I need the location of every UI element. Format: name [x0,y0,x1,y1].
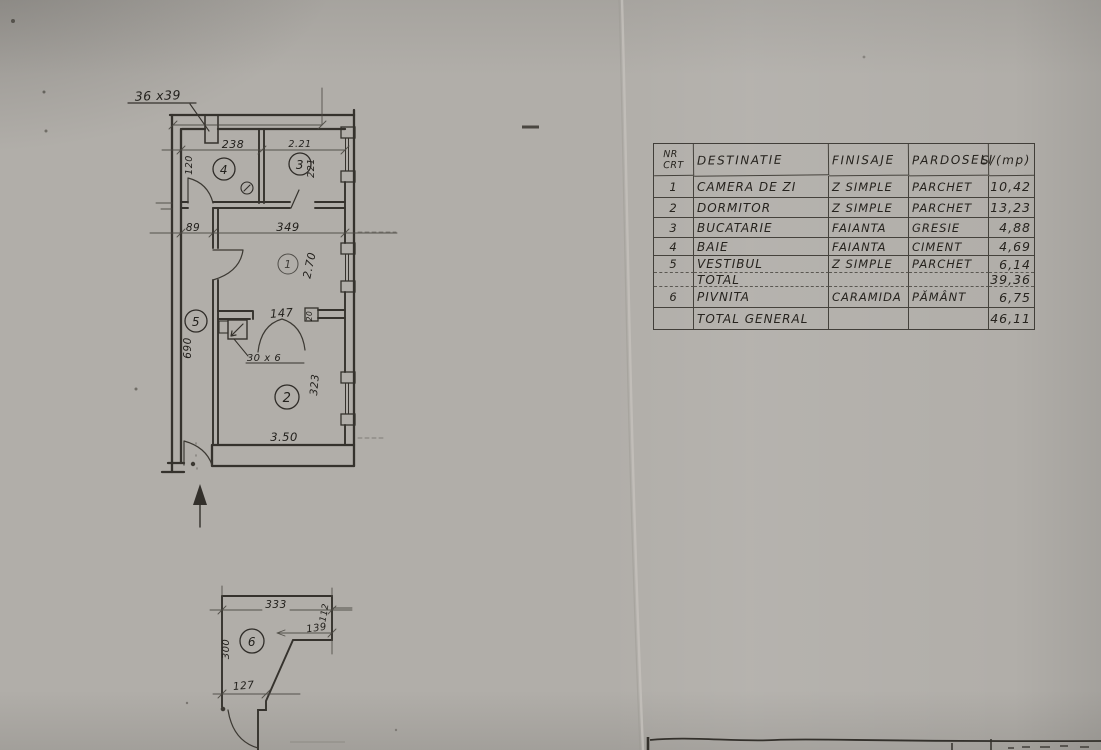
dim-20-rot: 20 [305,311,314,322]
plan-labels: 36 x39 238 2.21 221 120 89 349 2.70 147 … [135,87,322,444]
table-cell: CARAMIDA [829,287,909,308]
table-cell: 4,69 [989,238,1034,256]
table-cell: Z SIMPLE [829,176,909,198]
flue-arrow [231,324,243,336]
bath-door [188,178,213,203]
table-cell: 39,36 [989,273,1034,287]
dim-221-top: 2.21 [288,139,311,150]
table-cell: 2 [654,198,694,218]
dim-238: 238 [222,138,245,151]
bath-kitchen-wall [259,129,264,203]
table-cell: Z SIMPLE [829,256,909,273]
table-cell [909,308,989,329]
dim-221-rot: 221 [306,158,317,178]
room-number-1: 1 [284,258,292,271]
table-cell [654,273,694,287]
drain-circle [241,182,253,194]
room-circles [185,153,311,409]
dim-127: 127 [232,679,255,693]
table-cell [829,308,909,329]
double-door [258,319,305,352]
table-cell: 13,23 [989,198,1034,218]
title-block-fragment [648,737,1101,750]
dim-300-rot: 300 [221,639,232,660]
table-cell: 46,11 [989,308,1034,329]
living-bedroom-wall-left [218,311,253,319]
partitions [181,129,345,445]
table-cell-total-general: TOTAL GENERAL [694,308,829,329]
room-number-2: 2 [283,391,292,406]
table-cell: BAIE [694,238,829,256]
dim-30x6: 30 x 6 [247,353,281,364]
kitchen-door-leaf [291,190,299,208]
table-cell: 3 [654,218,694,238]
table-cell: 4,88 [989,218,1034,238]
living-bedroom-wall-right [318,310,345,318]
dim-323-rot: 323 [308,373,322,396]
paper-crease [619,0,643,750]
table-cell: PARCHET [909,256,989,273]
table-cell: PARCHET [909,198,989,218]
scanned-floorplan-page: { "table": { "headers": { "nr": "NR\nCRT… [0,0,1101,750]
room-number-4: 4 [220,163,228,177]
paper-specks [11,19,865,742]
dim-349: 349 [276,220,299,234]
dim-270-rot: 2.70 [300,251,318,280]
table-cell: 6 [654,287,694,308]
table-cell: 1 [654,176,694,198]
area-table: NR CRT DESTINATIE FINISAJE PARDOSELI S/(… [653,143,1035,330]
table-cell: 6,14 [989,256,1034,273]
dim-147: 147 [270,305,295,321]
flue-leader-line [190,104,209,131]
dim-120-rot: 120 [184,155,195,175]
table-cell: BUCATARIE [694,218,829,238]
table-cell: DORMITOR [694,198,829,218]
north-arrow-head [193,484,207,505]
wall-line [212,445,354,466]
table-cell-total: TOTAL [694,273,829,287]
table-cell: Z SIMPLE [829,198,909,218]
table-cell: GRESIE [909,218,989,238]
table-cell [829,273,909,287]
table-cell: 10,42 [989,176,1034,198]
dim-112-rot: 112 [318,603,331,623]
dim-690-rot: 690 [182,337,194,359]
living-door [213,250,243,280]
table-header-destinatie: DESTINATIE [694,143,829,176]
entry-door [184,441,212,465]
dimension-lines [150,88,397,469]
table-cell: PARCHET [909,176,989,198]
cellar-outline [222,596,332,750]
table-header-pardoseli: PARDOSELI [909,144,989,177]
table-cell: 5 [654,256,694,273]
table-header-finisaje: FINISAJE [829,144,909,177]
scanned-drawing: 36 x39 238 2.21 221 120 89 349 2.70 147 … [0,0,1101,750]
floor-plan: 36 x39 238 2.21 221 120 89 349 2.70 147 … [128,87,397,527]
table-cell: PIVNITA [694,287,829,308]
table-cell: 4 [654,238,694,256]
table-cell: VESTIBUL [694,256,829,273]
dim-89: 89 [186,222,200,234]
flue-size-label: 36 x39 [135,87,182,104]
table-cell: CIMENT [909,238,989,256]
table-header-nr: NR CRT [654,144,694,176]
cellar-door [221,707,258,748]
table-cell: FAIANTA [829,218,909,238]
room-number-5: 5 [192,315,200,329]
table-cell: 6,75 [989,287,1034,308]
door-hinge-dot [191,462,194,465]
cellar-plan: 333 112 139 300 127 6 [210,586,352,750]
table-header-s: S/(mp) [989,144,1034,176]
cropped-text-marks [1008,746,1089,748]
table-cell: PĂMÂNT [909,287,989,308]
table-cell: FAIANTA [829,238,909,256]
dim-333: 333 [265,599,287,611]
table-cell [654,308,694,329]
north-arrow [193,484,207,527]
vestibule-wall [213,208,218,445]
room-number-6: 6 [248,635,256,649]
dim-350: 3.50 [270,430,298,444]
room-number-3: 3 [296,158,304,172]
table-cell: CAMERA DE ZI [694,176,829,198]
table-cell [909,273,989,287]
